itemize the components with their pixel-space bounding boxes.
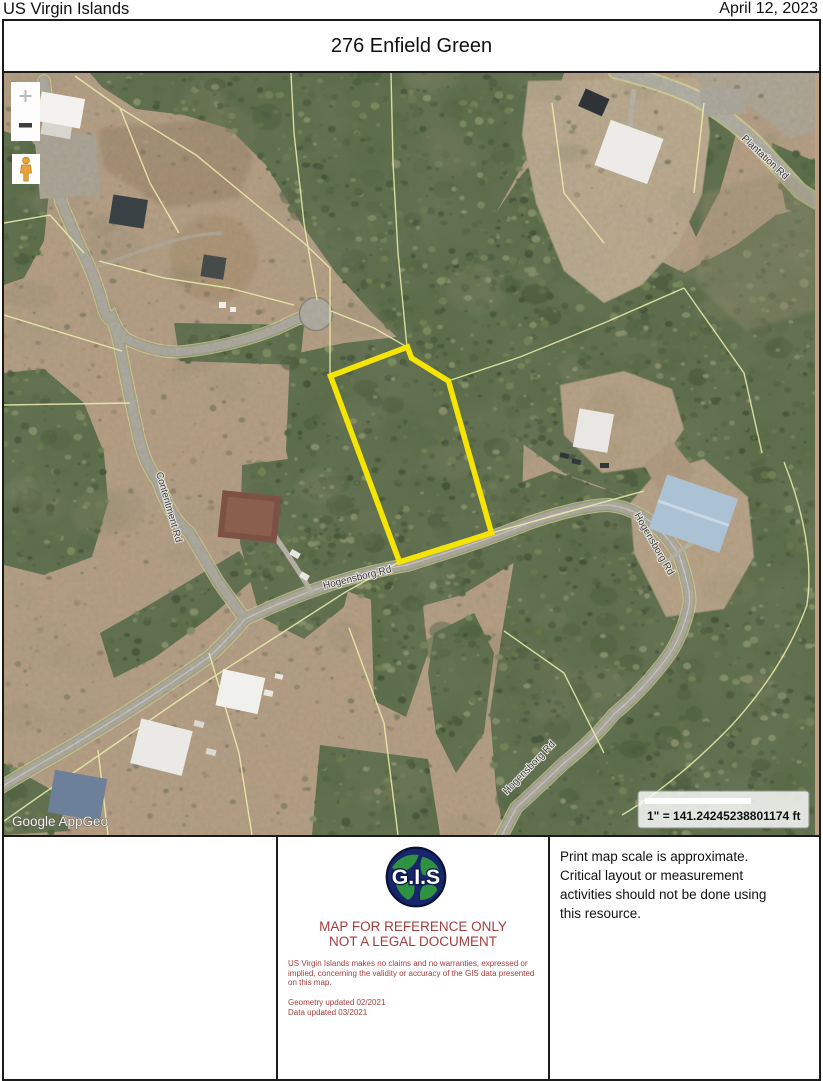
svg-text:G.I.S: G.I.S xyxy=(392,865,440,889)
svg-text:Google AppGeo: Google AppGeo xyxy=(12,814,108,829)
svg-text:1" = 141.24245238801174 ft: 1" = 141.24245238801174 ft xyxy=(647,809,801,823)
